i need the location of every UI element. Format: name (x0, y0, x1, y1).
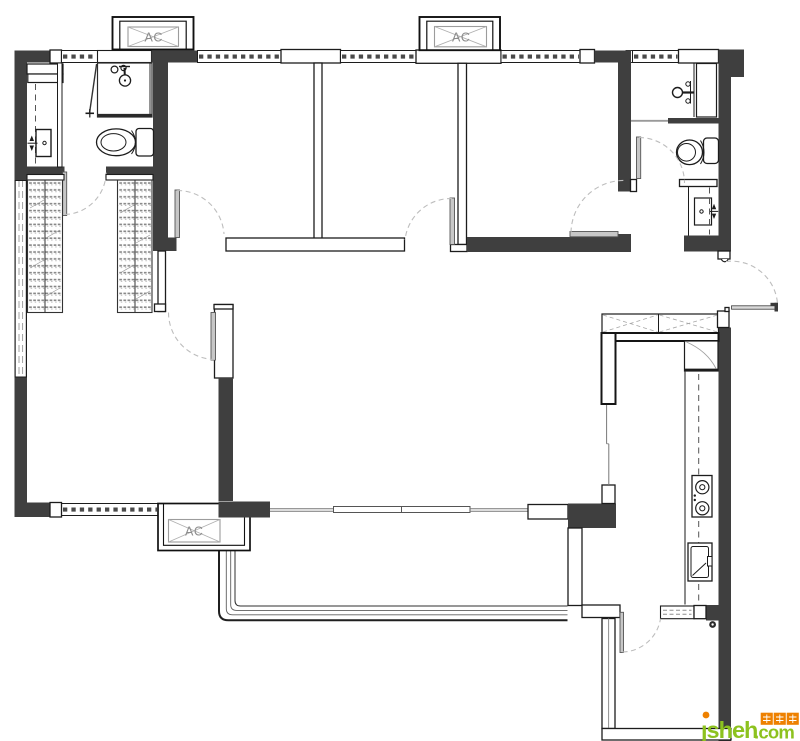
svg-text:AC: AC (145, 31, 163, 45)
svg-text:AC: AC (452, 31, 470, 45)
svg-text:AC: AC (185, 525, 203, 539)
